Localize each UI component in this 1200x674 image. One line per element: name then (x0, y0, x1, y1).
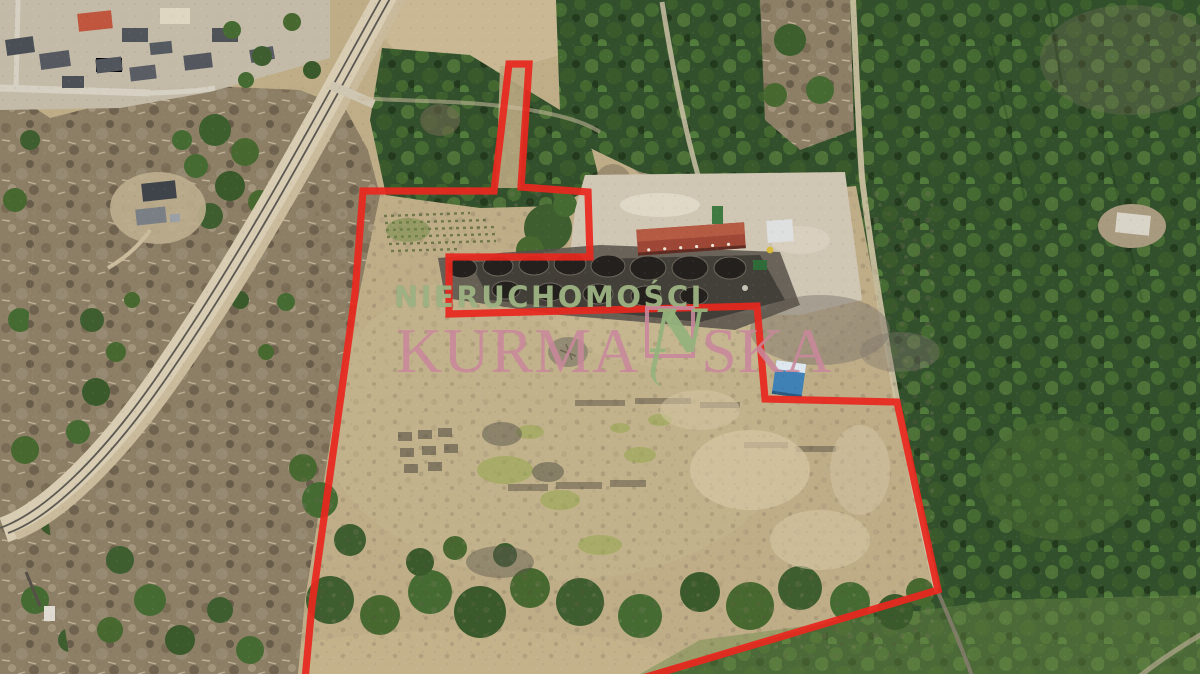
brand-logo-n-box: N (645, 306, 695, 358)
aerial-photo-stage: NIERUCHOMOŚCI KURMANSKA (0, 0, 1200, 674)
brand-suffix: SKA (701, 315, 832, 386)
watermark-brand: KURMANSKA (396, 319, 832, 399)
brand-prefix: KURMA (396, 315, 639, 386)
